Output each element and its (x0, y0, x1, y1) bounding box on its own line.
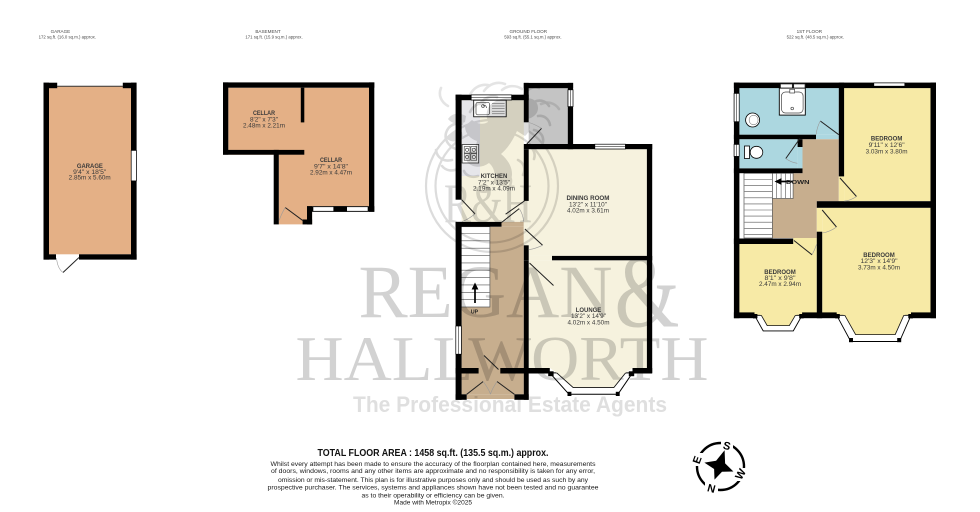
svg-text:BEDROOM: BEDROOM (871, 135, 903, 142)
svg-text:2.48m x 2.21m: 2.48m x 2.21m (243, 124, 285, 130)
svg-text:DOWN: DOWN (786, 180, 810, 186)
svg-text:522 sq.ft. (48.5 sq.m.) approx: 522 sq.ft. (48.5 sq.m.) approx. (787, 35, 844, 40)
svg-text:DINING ROOM: DINING ROOM (567, 195, 610, 202)
svg-text:BEDROOM: BEDROOM (863, 252, 895, 259)
svg-text:The Professional Estate Agents: The Professional Estate Agents (353, 392, 667, 417)
svg-text:171 sq.ft. (15.9 sq.m.) approx: 171 sq.ft. (15.9 sq.m.) approx. (245, 35, 302, 40)
svg-text:172 sq.ft. (16.0 sq.m.) approx: 172 sq.ft. (16.0 sq.m.) approx. (39, 35, 96, 40)
svg-text:of doors, windows, rooms and a: of doors, windows, rooms and any other i… (271, 468, 595, 475)
svg-text:3.73m x 4.50m: 3.73m x 4.50m (858, 265, 900, 271)
svg-text:GARAGE: GARAGE (51, 29, 71, 34)
svg-text:2.92m x 4.47m: 2.92m x 4.47m (310, 171, 352, 177)
svg-text:1ST FLOOR: 1ST FLOOR (797, 29, 823, 34)
svg-text:3.03m x 3.80m: 3.03m x 3.80m (866, 150, 908, 156)
svg-text:R&H: R&H (444, 173, 532, 235)
svg-text:HALLWORTH: HALLWORTH (296, 324, 709, 394)
svg-text:BASEMENT: BASEMENT (255, 29, 280, 34)
svg-text:GROUND FLOOR: GROUND FLOOR (510, 29, 548, 34)
svg-text:8'2" x 7'3": 8'2" x 7'3" (250, 117, 278, 123)
svg-text:CELLAR: CELLAR (253, 110, 275, 117)
svg-text:Made with Metropix ©2025: Made with Metropix ©2025 (394, 499, 472, 507)
svg-text:2.47m x 2.94m: 2.47m x 2.94m (759, 282, 801, 288)
svg-text:2.85m x 5.60m: 2.85m x 5.60m (69, 176, 111, 182)
svg-text:593 sq.ft. (55.1 sq.m.) approx: 593 sq.ft. (55.1 sq.m.) approx. (504, 35, 561, 40)
svg-text:omission or mis-statement. Thi: omission or mis-statement. This plan is … (278, 477, 589, 484)
svg-text:13'2" x 11'10": 13'2" x 11'10" (569, 203, 607, 209)
svg-text:9'7" x 14'8": 9'7" x 14'8" (314, 164, 348, 170)
svg-text:12'3" x 14'9": 12'3" x 14'9" (861, 259, 898, 265)
svg-text:CELLAR: CELLAR (320, 157, 342, 164)
svg-text:4.02m x 3.61m: 4.02m x 3.61m (567, 209, 609, 215)
svg-text:REGAN: REGAN (359, 251, 613, 334)
svg-text:9'11" x 12'6": 9'11" x 12'6" (869, 143, 905, 149)
svg-text:prospective purchaser. The ser: prospective purchaser. The services, sys… (268, 484, 599, 491)
svg-text:BEDROOM: BEDROOM (764, 269, 796, 276)
svg-text:TOTAL FLOOR AREA : 1458 sq.ft.: TOTAL FLOOR AREA : 1458 sq.ft. (135.5 sq… (318, 448, 549, 459)
